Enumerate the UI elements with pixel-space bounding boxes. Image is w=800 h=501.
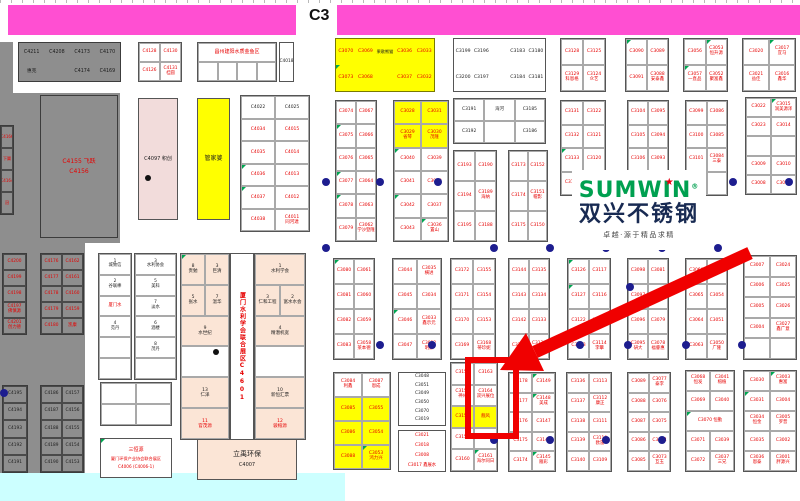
booth-cell[interactable]: C3030 <box>744 371 770 391</box>
booth-cell[interactable]: 5 美科 <box>135 275 176 296</box>
booth-cell[interactable]: C3048 <box>399 373 445 382</box>
booth-cell[interactable]: 昌州建阳水质金鱼区 <box>198 43 276 62</box>
booth-cell[interactable]: C3075 <box>649 412 670 432</box>
booth-cell[interactable]: C4177 <box>41 270 62 286</box>
booth-cell[interactable]: C3106 <box>628 148 648 172</box>
booth-cell[interactable]: C3064 <box>356 171 376 194</box>
booth-cell[interactable]: C3037 <box>395 65 415 91</box>
booth-cell[interactable]: C3132 <box>561 125 583 149</box>
booth-cell[interactable]: C3128 <box>561 39 583 65</box>
booth-cell[interactable]: C3022 <box>746 98 771 117</box>
booth-cell[interactable]: C3199 <box>454 39 472 65</box>
booth-cell[interactable]: C3031 <box>421 101 448 124</box>
booth-cell[interactable]: 7 温华 <box>205 285 229 316</box>
booth-cell[interactable]: C4166 <box>1 126 13 148</box>
booth-cell[interactable]: C3005 <box>744 297 770 318</box>
booth-cell[interactable]: C3004 <box>744 318 770 339</box>
booth-cell[interactable]: C4159 <box>62 302 83 318</box>
booth-cell[interactable]: C3175 <box>509 211 528 241</box>
booth-cell[interactable]: 厦门水 <box>99 296 131 317</box>
booth-cell[interactable]: C4201 创力德 <box>3 318 26 334</box>
booth-cell[interactable]: C3031 <box>744 391 770 411</box>
booth-cell[interactable]: C4036 <box>241 164 275 187</box>
booth-cell[interactable]: C3040 <box>710 391 734 411</box>
booth-cell[interactable]: C4198 <box>3 286 26 302</box>
booth-cell[interactable]: C3010 <box>771 156 796 175</box>
booth-cell[interactable]: C4190 <box>41 455 62 472</box>
booth-cell[interactable]: C3018 <box>399 441 445 451</box>
booth-cell[interactable]: C3050 <box>399 399 445 408</box>
booth-cell[interactable]: C3136 <box>567 373 589 393</box>
booth-cell[interactable]: C3088 安泰鑫 <box>647 65 668 91</box>
booth-cell[interactable]: C3174 <box>509 181 528 211</box>
booth-cell[interactable]: C3139 <box>567 432 589 452</box>
booth-cell[interactable]: C4131 桂圆 <box>160 62 181 81</box>
booth-cell[interactable]: C3001 胖源兴 <box>770 451 796 471</box>
booth-cell[interactable]: C3076 <box>336 148 356 171</box>
booth-cell[interactable]: C3089 <box>647 39 668 65</box>
booth-cell[interactable]: C3011 <box>771 175 796 194</box>
booth-cell[interactable]: C3086 <box>334 421 362 445</box>
booth-cell[interactable]: C4191 <box>3 455 27 472</box>
booth-cell[interactable]: C3002 <box>770 431 796 451</box>
booth-cell[interactable]: C3174 <box>509 451 532 471</box>
booth-cell[interactable]: C3081 <box>648 259 668 284</box>
booth-cell[interactable]: C4025 <box>275 96 309 119</box>
booth-cell[interactable]: C3051 <box>707 309 728 334</box>
booth-cell[interactable]: C3061 <box>354 259 374 284</box>
booth-cell[interactable]: 10 新恒汇票 <box>255 377 305 408</box>
booth-cell[interactable]: C4192 <box>3 438 27 455</box>
booth-cell[interactable]: C3143 <box>509 284 529 309</box>
booth-cell[interactable]: C3138 <box>567 412 589 432</box>
booth-cell[interactable]: C3181 <box>527 65 545 91</box>
booth-cell[interactable]: C3033 鑫示元 <box>417 309 441 334</box>
booth-cell[interactable]: C3078 <box>336 194 356 217</box>
booth-cell[interactable]: C3190 <box>475 151 496 181</box>
booth-cell[interactable]: 2 谷联棒 <box>99 275 131 296</box>
booth-cell[interactable]: C3077 泰李 <box>649 373 670 393</box>
booth-cell[interactable]: C3112 康正 <box>589 393 611 413</box>
booth-cell[interactable]: 13 仁泽 <box>181 377 229 408</box>
booth-cell[interactable]: 下翼 <box>1 148 13 170</box>
booth-cell[interactable]: C3049 <box>399 390 445 399</box>
booth-cell[interactable]: C3155 <box>473 259 495 284</box>
booth-cell[interactable]: C3084 三泰 <box>707 148 728 172</box>
booth-cell[interactable]: C3080 <box>648 284 668 309</box>
booth-cell[interactable]: C3043 <box>394 218 421 241</box>
booth-cell[interactable]: C3080 <box>334 259 354 284</box>
booth-cell[interactable]: C3041 <box>394 171 421 194</box>
booth-cell[interactable]: C3195 <box>454 211 475 241</box>
booth-cell[interactable]: C3024 <box>770 256 796 277</box>
booth-cell[interactable]: C3030 茂隆 <box>421 124 448 147</box>
booth-cell[interactable]: 惠克 <box>19 62 44 81</box>
booth-cell[interactable]: C3196 <box>472 39 490 65</box>
booth-cell[interactable]: C4180 <box>41 318 62 334</box>
booth-cell[interactable]: C3133 <box>561 148 583 172</box>
booth-cell[interactable]: C3044 <box>393 259 417 284</box>
booth-cell[interactable]: C3075 <box>336 124 356 147</box>
booth-cell[interactable]: C3023 <box>746 117 771 136</box>
booth-cell[interactable]: C3144 <box>509 259 529 284</box>
booth-cell[interactable]: C4034 <box>241 119 275 142</box>
booth-cell[interactable]: C3125 <box>583 39 605 65</box>
booth-cell[interactable]: C3046 <box>393 309 417 334</box>
booth-cell[interactable]: C4011 同河達 <box>275 209 309 232</box>
booth-cell[interactable]: C3057 一直品 <box>684 65 706 91</box>
booth-cell[interactable]: C3040 <box>394 148 421 171</box>
booth-cell[interactable]: C3045 <box>393 284 417 309</box>
booth-cell[interactable]: C4126 <box>139 62 160 81</box>
booth-cell[interactable]: C3086 <box>707 101 728 125</box>
booth-cell[interactable]: C3145 雁彩 <box>532 451 555 471</box>
booth-cell[interactable]: C3017 宜马 <box>769 39 795 65</box>
booth-cell[interactable]: C3073 <box>336 65 356 91</box>
booth-cell[interactable]: C3062 学沙登隆 <box>356 218 376 241</box>
booth-cell[interactable]: C3161 海尔同日 <box>474 449 497 471</box>
booth-cell[interactable]: C3003 惠富 <box>770 371 796 391</box>
booth-cell[interactable]: C3053 恒升源 <box>706 39 728 65</box>
booth-cell[interactable]: C3021 益佳 <box>743 65 769 91</box>
booth-cell[interactable]: C3089 <box>628 373 649 393</box>
booth-cell[interactable]: C4154 <box>62 438 83 455</box>
booth-cell[interactable]: C3051 <box>399 382 445 391</box>
booth-cell[interactable]: C3114 李攀 <box>589 334 610 359</box>
booth-cell[interactable]: C3088 <box>334 445 362 469</box>
booth-cell[interactable]: C4161 <box>62 270 83 286</box>
booth-cell[interactable]: C3032 <box>414 65 434 91</box>
booth-cell[interactable]: C3154 <box>473 284 495 309</box>
booth-cell[interactable]: C3168 蒂珍妮 <box>473 334 495 359</box>
booth-cell[interactable]: C3120 <box>583 148 605 172</box>
booth-cell[interactable]: C3087 <box>628 412 649 432</box>
booth-cell[interactable]: 8 贵勉 <box>181 254 205 285</box>
booth-cell[interactable]: 4 精潜机宽 <box>255 316 305 347</box>
booth-cell[interactable]: C3185 <box>515 99 545 121</box>
booth-cell[interactable]: C3086 <box>628 432 649 452</box>
booth-cell[interactable]: C4153 <box>62 455 83 472</box>
booth-cell[interactable]: C3065 <box>356 148 376 171</box>
booth-cell[interactable]: C3074 <box>336 101 356 124</box>
booth-cell[interactable]: C3191 <box>454 99 484 121</box>
booth-cell[interactable]: C3171 <box>451 284 473 309</box>
booth-cell[interactable]: C3020 <box>743 39 769 65</box>
booth-cell[interactable]: C3068 <box>356 65 376 91</box>
booth-cell[interactable]: C3189 海纳 <box>475 181 496 211</box>
booth-cell[interactable]: C3034 恒金 <box>744 411 770 431</box>
booth-cell[interactable]: C3105 <box>628 125 648 149</box>
booth-cell[interactable]: 2 富水水会 <box>280 285 305 316</box>
booth-cell[interactable]: C3084 利鑫 <box>334 373 362 397</box>
booth-cell[interactable]: C3006 <box>744 277 770 298</box>
booth-cell[interactable]: C3035 <box>744 431 770 451</box>
booth-cell[interactable]: C3099 <box>686 101 707 125</box>
booth-cell[interactable]: C3122 <box>583 101 605 125</box>
booth-cell[interactable]: C3009 <box>746 156 771 175</box>
booth-cell[interactable]: C4186 <box>41 386 62 403</box>
booth-cell[interactable]: C3169 <box>451 334 473 359</box>
booth-cell[interactable]: C3059 <box>354 309 374 334</box>
booth-cell[interactable]: C3091 <box>626 65 647 91</box>
booth-cell[interactable]: 果歌熊猫 <box>375 39 395 65</box>
booth-cell[interactable]: C4188 <box>41 420 62 437</box>
booth-cell[interactable]: C3068 恒发 <box>686 371 710 391</box>
booth-cell[interactable]: C3066 <box>686 259 707 284</box>
booth-cell[interactable]: C4130 <box>160 43 181 62</box>
booth-cell[interactable]: 海河 <box>484 99 514 121</box>
booth-cell[interactable]: C4035 <box>241 141 275 164</box>
booth-cell[interactable]: C3072 <box>686 451 710 471</box>
booth-cell[interactable]: C3134 <box>529 284 549 309</box>
booth-cell[interactable]: C3065 <box>686 284 707 309</box>
booth-cell[interactable]: C3017 鑫展水 <box>399 461 445 471</box>
booth-cell[interactable]: C3153 <box>473 309 495 334</box>
booth-cell[interactable]: C4197 佛慎源 <box>3 302 26 318</box>
booth-cell[interactable]: C3055 <box>362 397 390 421</box>
booth-cell[interactable]: C3131 <box>561 101 583 125</box>
booth-cell[interactable]: C3042 <box>394 194 421 217</box>
booth-cell[interactable]: C3054 <box>707 284 728 309</box>
booth-cell[interactable]: C3069 <box>686 391 710 411</box>
booth-cell[interactable]: C3170 <box>451 309 473 334</box>
booth-cell[interactable]: C3147 <box>532 412 555 432</box>
booth-cell[interactable]: C3060 <box>354 284 374 309</box>
booth-cell[interactable]: C3151 帽影 <box>528 181 547 211</box>
booth-cell[interactable]: C4174 <box>70 62 95 81</box>
booth-cell[interactable]: C3113 <box>589 373 611 393</box>
booth-cell[interactable]: C4162 <box>62 254 83 270</box>
booth-cell[interactable]: 3 仁和工程 <box>255 285 280 316</box>
booth-cell[interactable]: C3100 <box>686 125 707 149</box>
booth-cell[interactable]: C3037 三兄 <box>710 451 734 471</box>
booth-cell[interactable]: C3035 横进 <box>417 259 441 284</box>
booth-cell[interactable]: C4160 <box>62 286 83 302</box>
booth-cell[interactable]: C3067 <box>356 101 376 124</box>
booth-cell[interactable]: C4178 <box>41 286 62 302</box>
booth-cell[interactable]: C3054 <box>362 421 390 445</box>
booth-cell[interactable]: 3 水利协会 <box>135 254 176 275</box>
booth-cell[interactable]: C3073 互玉 <box>649 451 670 471</box>
booth-cell[interactable]: C4211 <box>19 43 44 62</box>
booth-cell[interactable]: C4176 <box>41 254 62 270</box>
booth-cell[interactable]: C3081 <box>334 284 354 309</box>
booth-cell[interactable]: C3063 <box>356 194 376 217</box>
booth-cell[interactable]: C3007 <box>744 256 770 277</box>
booth-cell[interactable]: C3071 <box>686 431 710 451</box>
booth-cell[interactable]: C4038 <box>241 209 275 232</box>
booth-cell[interactable]: C3109 <box>589 451 611 471</box>
booth-cell[interactable]: C3066 <box>356 124 376 147</box>
booth-cell[interactable]: C3085 <box>707 125 728 149</box>
booth-cell[interactable]: C3016 鑫华 <box>769 65 795 91</box>
booth-cell[interactable]: C3025 <box>770 277 796 298</box>
booth-cell[interactable]: 7 淡水 <box>135 296 176 317</box>
booth-cell[interactable]: C3052 聚富鑫 <box>706 65 728 91</box>
booth-cell[interactable]: C3149 <box>532 373 555 393</box>
booth-cell[interactable]: C3094 <box>648 125 668 149</box>
booth-cell[interactable]: C3014 <box>771 117 796 136</box>
booth-cell[interactable]: C3027 鑫广意 <box>770 318 796 339</box>
booth-cell[interactable]: C3029 省琴 <box>394 124 421 147</box>
booth-cell[interactable]: C3008 <box>746 175 771 194</box>
booth-cell[interactable]: C4022 <box>241 96 275 119</box>
booth-cell[interactable]: C3078 福睿惠 <box>648 334 668 359</box>
booth-cell[interactable]: C3152 <box>528 151 547 181</box>
booth-cell[interactable]: 冠 <box>1 192 13 214</box>
booth-cell[interactable]: C3019 <box>399 416 445 425</box>
booth-cell[interactable]: C4179 <box>41 302 62 318</box>
booth-cell[interactable]: C3015 润美源泽 <box>771 98 796 117</box>
booth-cell[interactable]: C3079 <box>336 218 356 241</box>
booth-cell[interactable]: C3140 <box>567 451 589 471</box>
booth-cell[interactable]: C3053 鸿力兴 <box>362 445 390 469</box>
booth-cell[interactable]: C3135 <box>529 259 549 284</box>
booth-cell[interactable]: 12 骏榕源 <box>255 408 305 439</box>
booth-cell[interactable]: C4173 <box>70 43 95 62</box>
booth-cell[interactable]: C3047 <box>393 334 417 359</box>
booth-cell[interactable]: C3122 <box>568 309 589 334</box>
booth-cell[interactable]: C3021 <box>399 431 445 441</box>
booth-cell[interactable]: C4170 <box>95 43 120 62</box>
booth-cell[interactable]: C3183 <box>509 39 527 65</box>
booth-cell[interactable]: C3090 <box>626 39 647 65</box>
booth-cell[interactable]: C4199 <box>3 270 26 286</box>
booth-cell[interactable]: C3056 <box>684 39 706 65</box>
booth-cell[interactable]: C4128 <box>139 43 160 62</box>
booth-cell[interactable]: C4187 <box>41 403 62 420</box>
booth-cell[interactable]: C3101 <box>686 148 707 172</box>
booth-cell[interactable]: C3095 <box>648 101 668 125</box>
booth-cell[interactable]: C3064 <box>686 309 707 334</box>
booth-cell[interactable]: C4157 <box>62 386 83 403</box>
booth-cell[interactable]: C4189 <box>41 438 62 455</box>
booth-cell[interactable]: C3172 <box>451 259 473 284</box>
booth-cell[interactable]: C3184 <box>509 65 527 91</box>
booth-cell[interactable]: C3192 <box>454 121 484 143</box>
booth-cell[interactable]: C3055 <box>707 259 728 284</box>
booth-cell[interactable]: C3070 <box>336 39 356 65</box>
booth-cell[interactable]: C3039 <box>421 148 448 171</box>
booth-cell[interactable]: C3077 <box>336 171 356 194</box>
booth-cell[interactable]: C3087 恩成 <box>362 373 390 397</box>
booth-cell[interactable]: 8 茂丹 <box>135 337 176 358</box>
booth-cell[interactable]: C3079 <box>648 309 668 334</box>
booth-cell[interactable]: C3160 <box>451 449 474 471</box>
booth-cell[interactable]: C4012 <box>275 186 309 209</box>
booth-cell[interactable]: C3008 <box>399 451 445 461</box>
booth-cell[interactable]: C3132 恒美 <box>529 334 549 359</box>
booth-cell[interactable]: C3180 <box>527 39 545 65</box>
booth-cell[interactable]: 6 酒楼 <box>135 316 176 337</box>
booth-cell[interactable]: C3142 <box>509 309 529 334</box>
booth-cell[interactable]: C3004 <box>770 391 796 411</box>
booth-cell[interactable]: C3193 <box>454 151 475 181</box>
booth-cell[interactable]: C3096 <box>628 309 648 334</box>
booth-cell[interactable]: C4164 <box>1 170 13 192</box>
booth-cell[interactable]: C3058 莱本德 <box>354 334 374 359</box>
booth-cell[interactable]: 11 官茂源 <box>181 408 229 439</box>
booth-cell[interactable]: C3197 <box>472 65 490 91</box>
booth-cell[interactable]: C3036 <box>395 39 415 65</box>
booth-cell[interactable]: C3104 <box>628 101 648 125</box>
booth-cell[interactable]: C3085 <box>334 397 362 421</box>
booth-cell[interactable]: C4014 <box>275 141 309 164</box>
booth-cell[interactable]: C3124 众艺 <box>583 65 605 91</box>
booth-cell[interactable]: C3036 恩泰 <box>744 451 770 471</box>
booth-cell[interactable]: C3148 美成 <box>532 393 555 413</box>
booth-cell[interactable]: C3026 <box>770 297 796 318</box>
booth-cell[interactable]: C3188 <box>475 211 496 241</box>
booth-cell[interactable]: C3150 <box>528 211 547 241</box>
booth-cell[interactable]: C3039 <box>710 431 734 451</box>
booth-cell[interactable]: C3126 <box>568 259 589 284</box>
booth-cell[interactable]: C3129 科恩格 <box>561 65 583 91</box>
booth-cell[interactable]: C3133 <box>529 309 549 334</box>
booth-cell[interactable]: C3173 <box>509 151 528 181</box>
booth-cell[interactable]: C4018 <box>280 43 293 81</box>
booth-cell[interactable]: 4 苋丹 <box>99 316 131 337</box>
booth-cell[interactable]: C3082 <box>334 309 354 334</box>
booth-cell[interactable]: 9 水世纪 <box>181 316 229 347</box>
booth-cell[interactable]: C4193 <box>3 420 27 437</box>
booth-cell[interactable]: C3028 <box>394 101 421 124</box>
booth-cell[interactable]: C3041 榕植 <box>710 371 734 391</box>
booth-cell[interactable]: C3186 <box>515 121 545 143</box>
booth-cell[interactable]: C3050 广隆 <box>707 334 728 359</box>
booth-cell[interactable]: 1 城致信 <box>99 254 131 275</box>
booth-cell[interactable]: C4013 <box>275 164 309 187</box>
booth-cell[interactable]: C4155 <box>62 420 83 437</box>
booth-cell[interactable]: C4208 <box>44 43 69 62</box>
booth-cell[interactable]: C4156 <box>62 403 83 420</box>
booth-cell[interactable]: C3076 <box>649 393 670 413</box>
booth-cell[interactable]: C4194 <box>3 403 27 420</box>
booth-cell[interactable]: C3085 <box>628 451 649 471</box>
booth-cell[interactable]: 1 水利学会 <box>255 254 305 285</box>
booth-cell[interactable]: C3088 <box>628 393 649 413</box>
booth-cell[interactable]: C3137 <box>567 393 589 413</box>
booth-cell[interactable]: C3111 <box>589 412 611 432</box>
booth-cell[interactable]: C3141 <box>509 334 529 359</box>
booth-cell[interactable]: C3116 <box>589 284 610 309</box>
booth-cell[interactable]: C3117 <box>589 259 610 284</box>
booth-cell[interactable]: C3200 <box>454 65 472 91</box>
booth-cell[interactable]: 3 巨清 <box>205 254 229 285</box>
booth-cell[interactable]: C4037 <box>241 186 275 209</box>
booth-cell[interactable]: C3070 <box>399 408 445 417</box>
booth-cell[interactable]: 5 张水 <box>181 285 205 316</box>
booth-cell[interactable]: C3033 <box>414 39 434 65</box>
booth-cell[interactable]: C3034 <box>417 284 441 309</box>
booth-cell[interactable]: C3093 <box>648 148 668 172</box>
booth-cell[interactable]: C3036 置山 <box>421 218 448 241</box>
booth-cell[interactable]: C3115 <box>589 309 610 334</box>
booth-cell[interactable]: C3069 <box>356 39 376 65</box>
booth-cell[interactable]: C3083 <box>334 334 354 359</box>
booth-cell[interactable]: C3005 罗普 <box>770 411 796 431</box>
booth-cell[interactable]: 凯康 <box>62 318 83 334</box>
booth-cell[interactable]: C3121 <box>583 125 605 149</box>
booth-cell[interactable]: C3037 <box>421 194 448 217</box>
booth-cell[interactable]: C4015 <box>275 119 309 142</box>
booth-cell[interactable]: C4200 <box>3 254 26 270</box>
booth-cell[interactable]: C4169 <box>95 62 120 81</box>
booth-cell[interactable]: C3070 恒勤 <box>686 411 734 431</box>
booth-cell[interactable]: C3194 <box>454 181 475 211</box>
booth-cell[interactable]: C3127 <box>568 284 589 309</box>
booth-cell[interactable]: C3098 <box>628 259 648 284</box>
